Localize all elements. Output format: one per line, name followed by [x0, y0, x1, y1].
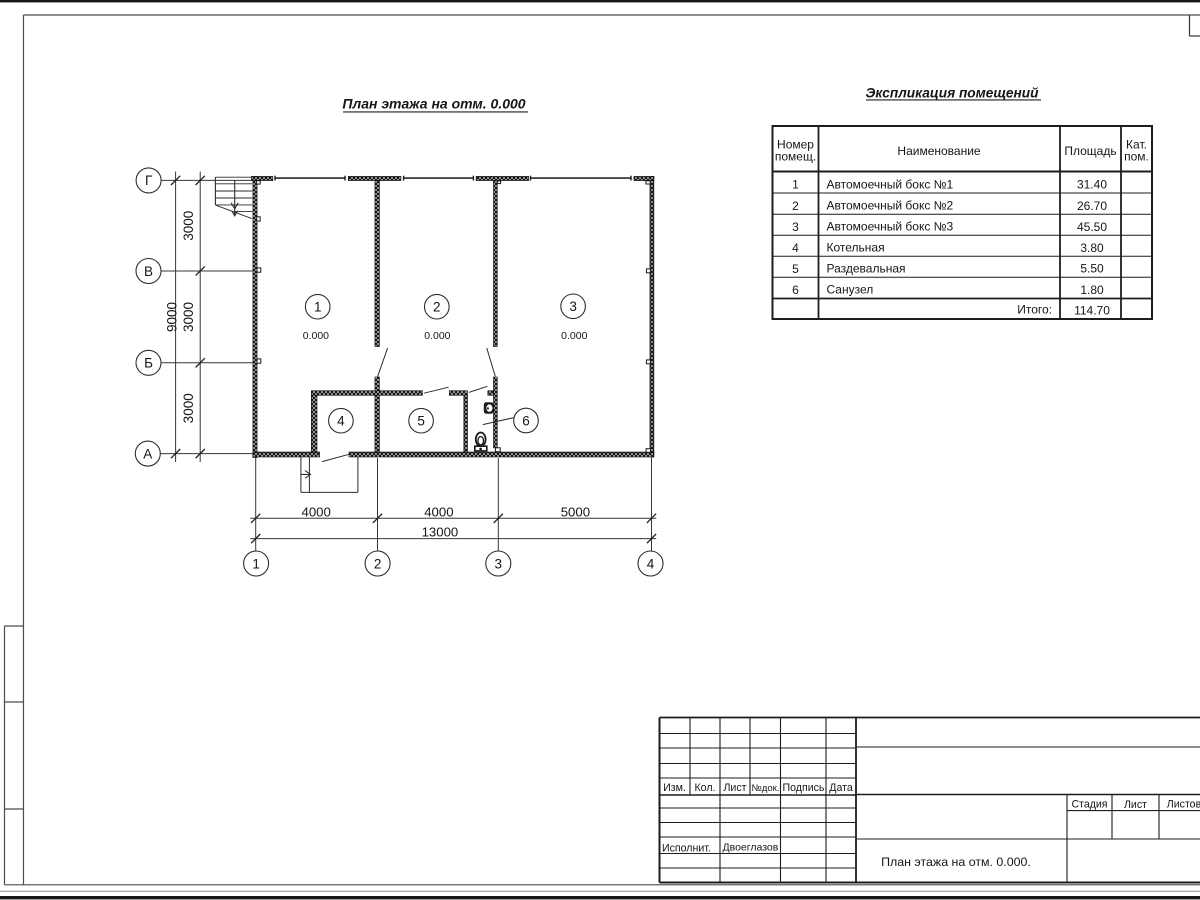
svg-text:1: 1: [252, 556, 260, 571]
svg-text:2: 2: [433, 300, 441, 315]
svg-text:114.70: 114.70: [1074, 304, 1110, 318]
svg-text:3.80: 3.80: [1080, 241, 1104, 255]
svg-text:Подпись: Подпись: [783, 782, 825, 794]
svg-text:Наименование: Наименование: [897, 144, 981, 158]
svg-text:5000: 5000: [561, 504, 590, 519]
svg-text:Котельная: Котельная: [827, 241, 885, 255]
svg-text:Лист: Лист: [1124, 799, 1147, 811]
svg-text:Исполнит.: Исполнит.: [662, 843, 711, 855]
svg-text:2: 2: [374, 556, 382, 571]
svg-text:3: 3: [495, 556, 503, 571]
svg-text:1: 1: [314, 300, 322, 315]
svg-text:26.70: 26.70: [1077, 199, 1107, 213]
svg-text:3000: 3000: [181, 393, 196, 423]
svg-text:0.000: 0.000: [424, 330, 450, 342]
svg-text:3000: 3000: [181, 302, 196, 332]
svg-text:0.000: 0.000: [303, 330, 329, 342]
svg-text:Листов: Листов: [1167, 799, 1200, 811]
svg-text:План этажа на отм. 0.000: План этажа на отм. 0.000: [342, 96, 525, 112]
svg-text:План этажа на отм. 0.000.: План этажа на отм. 0.000.: [881, 855, 1031, 869]
svg-text:1: 1: [792, 178, 799, 192]
svg-text:Раздевальная: Раздевальная: [827, 262, 906, 276]
svg-text:3000: 3000: [181, 211, 196, 241]
svg-text:№док.: №док.: [751, 783, 779, 794]
svg-text:4: 4: [337, 414, 345, 429]
svg-text:Итого:: Итого:: [1017, 303, 1052, 317]
svg-text:5: 5: [792, 262, 799, 276]
svg-text:9000: 9000: [165, 302, 180, 332]
svg-text:13000: 13000: [422, 525, 459, 540]
svg-text:4000: 4000: [302, 504, 331, 519]
svg-text:Площадь: Площадь: [1064, 144, 1116, 158]
svg-text:5: 5: [417, 414, 425, 429]
svg-text:помещ.: помещ.: [775, 150, 816, 164]
svg-text:3: 3: [792, 220, 799, 234]
svg-text:Кол.: Кол.: [695, 782, 716, 794]
svg-text:Стадия: Стадия: [1071, 799, 1107, 811]
svg-text:Б: Б: [144, 356, 153, 371]
svg-text:45.50: 45.50: [1077, 220, 1107, 234]
svg-text:4: 4: [792, 241, 799, 255]
svg-text:А: А: [143, 446, 152, 461]
svg-text:Экспликация помещений: Экспликация помещений: [866, 86, 1040, 101]
svg-text:Лист: Лист: [723, 782, 746, 794]
svg-text:1.80: 1.80: [1080, 283, 1104, 297]
svg-text:31.40: 31.40: [1077, 178, 1107, 192]
svg-text:6: 6: [792, 283, 799, 297]
svg-text:Автомоечный бокс №2: Автомоечный бокс №2: [827, 199, 954, 213]
svg-text:3: 3: [569, 299, 577, 314]
svg-text:Двоеглазов: Двоеглазов: [723, 842, 779, 854]
svg-text:2: 2: [792, 199, 799, 213]
svg-text:Дата: Дата: [829, 782, 853, 794]
svg-text:Г: Г: [145, 173, 153, 188]
svg-text:Автомоечный бокс №1: Автомоечный бокс №1: [827, 177, 954, 191]
svg-text:Санузел: Санузел: [827, 283, 874, 297]
svg-text:5.50: 5.50: [1080, 262, 1104, 276]
svg-text:пом.: пом.: [1124, 150, 1149, 164]
svg-text:Изм.: Изм.: [663, 782, 686, 794]
svg-text:Автомоечный бокс №3: Автомоечный бокс №3: [827, 220, 954, 234]
svg-text:4000: 4000: [424, 504, 453, 519]
svg-text:4: 4: [647, 556, 655, 571]
svg-text:В: В: [144, 264, 153, 279]
svg-text:6: 6: [522, 413, 530, 428]
svg-text:0.000: 0.000: [561, 330, 587, 342]
